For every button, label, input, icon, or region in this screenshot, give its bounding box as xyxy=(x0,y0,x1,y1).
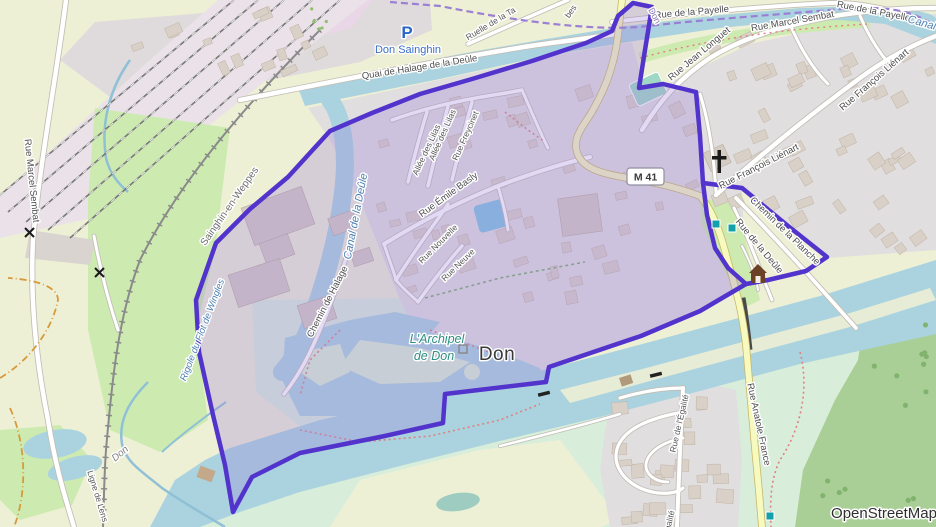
orchard-dot xyxy=(310,7,313,10)
tree-icon xyxy=(921,362,926,367)
tree-icon xyxy=(903,403,908,408)
building xyxy=(697,474,708,482)
orchard-dot xyxy=(320,26,323,29)
building xyxy=(649,503,665,515)
building xyxy=(684,432,695,445)
attribution-link[interactable]: OpenStreetMap xyxy=(831,505,936,522)
orchard-dot xyxy=(318,27,321,30)
building xyxy=(696,397,707,410)
parking-icon: P xyxy=(401,23,412,42)
building xyxy=(707,464,720,475)
tree-icon xyxy=(837,490,842,495)
tree-icon xyxy=(911,496,916,501)
tree-icon xyxy=(872,364,877,369)
map-viewport[interactable]: M 41 P Don Sainghin Quai de Halage de la… xyxy=(0,0,936,527)
place-label-don: Don xyxy=(479,344,515,365)
tree-icon xyxy=(820,493,825,498)
tree-icon xyxy=(923,322,928,327)
orchard-dot xyxy=(313,19,316,22)
tree-icon xyxy=(825,478,830,483)
tree-icon xyxy=(894,373,899,378)
map-canvas[interactable]: M 41 P Don Sainghin Quai de Halage de la… xyxy=(0,0,936,527)
building xyxy=(631,464,644,479)
tree-icon xyxy=(923,389,928,394)
water-label-archipel-1: L'Archipel xyxy=(410,332,466,346)
poi-marker xyxy=(766,512,774,520)
building xyxy=(631,511,642,522)
station-label: Don Sainghin xyxy=(375,44,441,56)
tree-icon xyxy=(922,350,927,355)
building xyxy=(689,486,701,499)
tree-icon xyxy=(906,498,911,503)
building xyxy=(716,489,734,504)
building xyxy=(713,474,729,484)
road-ref-label: M 41 xyxy=(634,172,658,184)
orchard-dot xyxy=(325,20,328,23)
water-label-archipel-2: de Don xyxy=(414,349,454,363)
poi-marker xyxy=(712,220,720,228)
tree-icon xyxy=(842,487,847,492)
